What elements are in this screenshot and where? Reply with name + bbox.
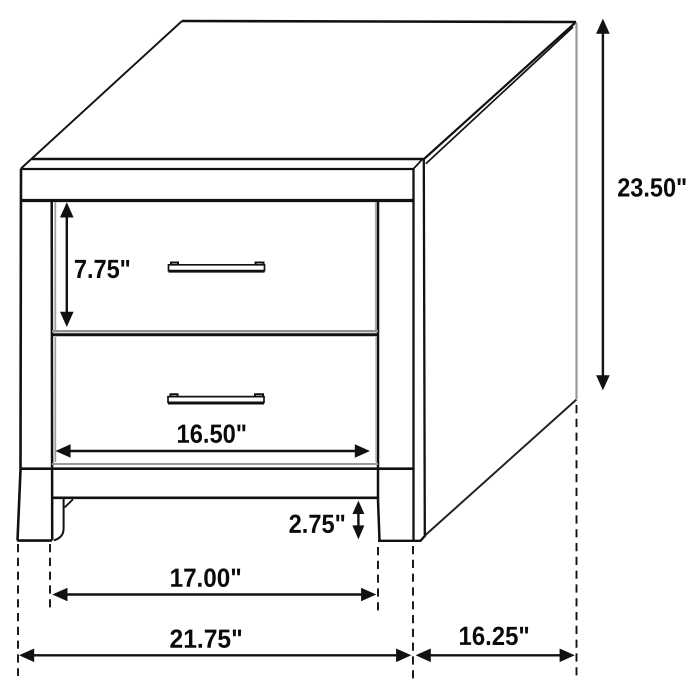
svg-text:17.00": 17.00" [170, 563, 242, 593]
svg-text:2.75": 2.75" [289, 509, 346, 539]
svg-text:23.50": 23.50" [617, 173, 687, 203]
svg-text:21.75": 21.75" [170, 624, 243, 654]
svg-text:16.50": 16.50" [177, 419, 248, 449]
svg-text:7.75": 7.75" [74, 254, 131, 284]
svg-text:16.25": 16.25" [459, 621, 530, 651]
